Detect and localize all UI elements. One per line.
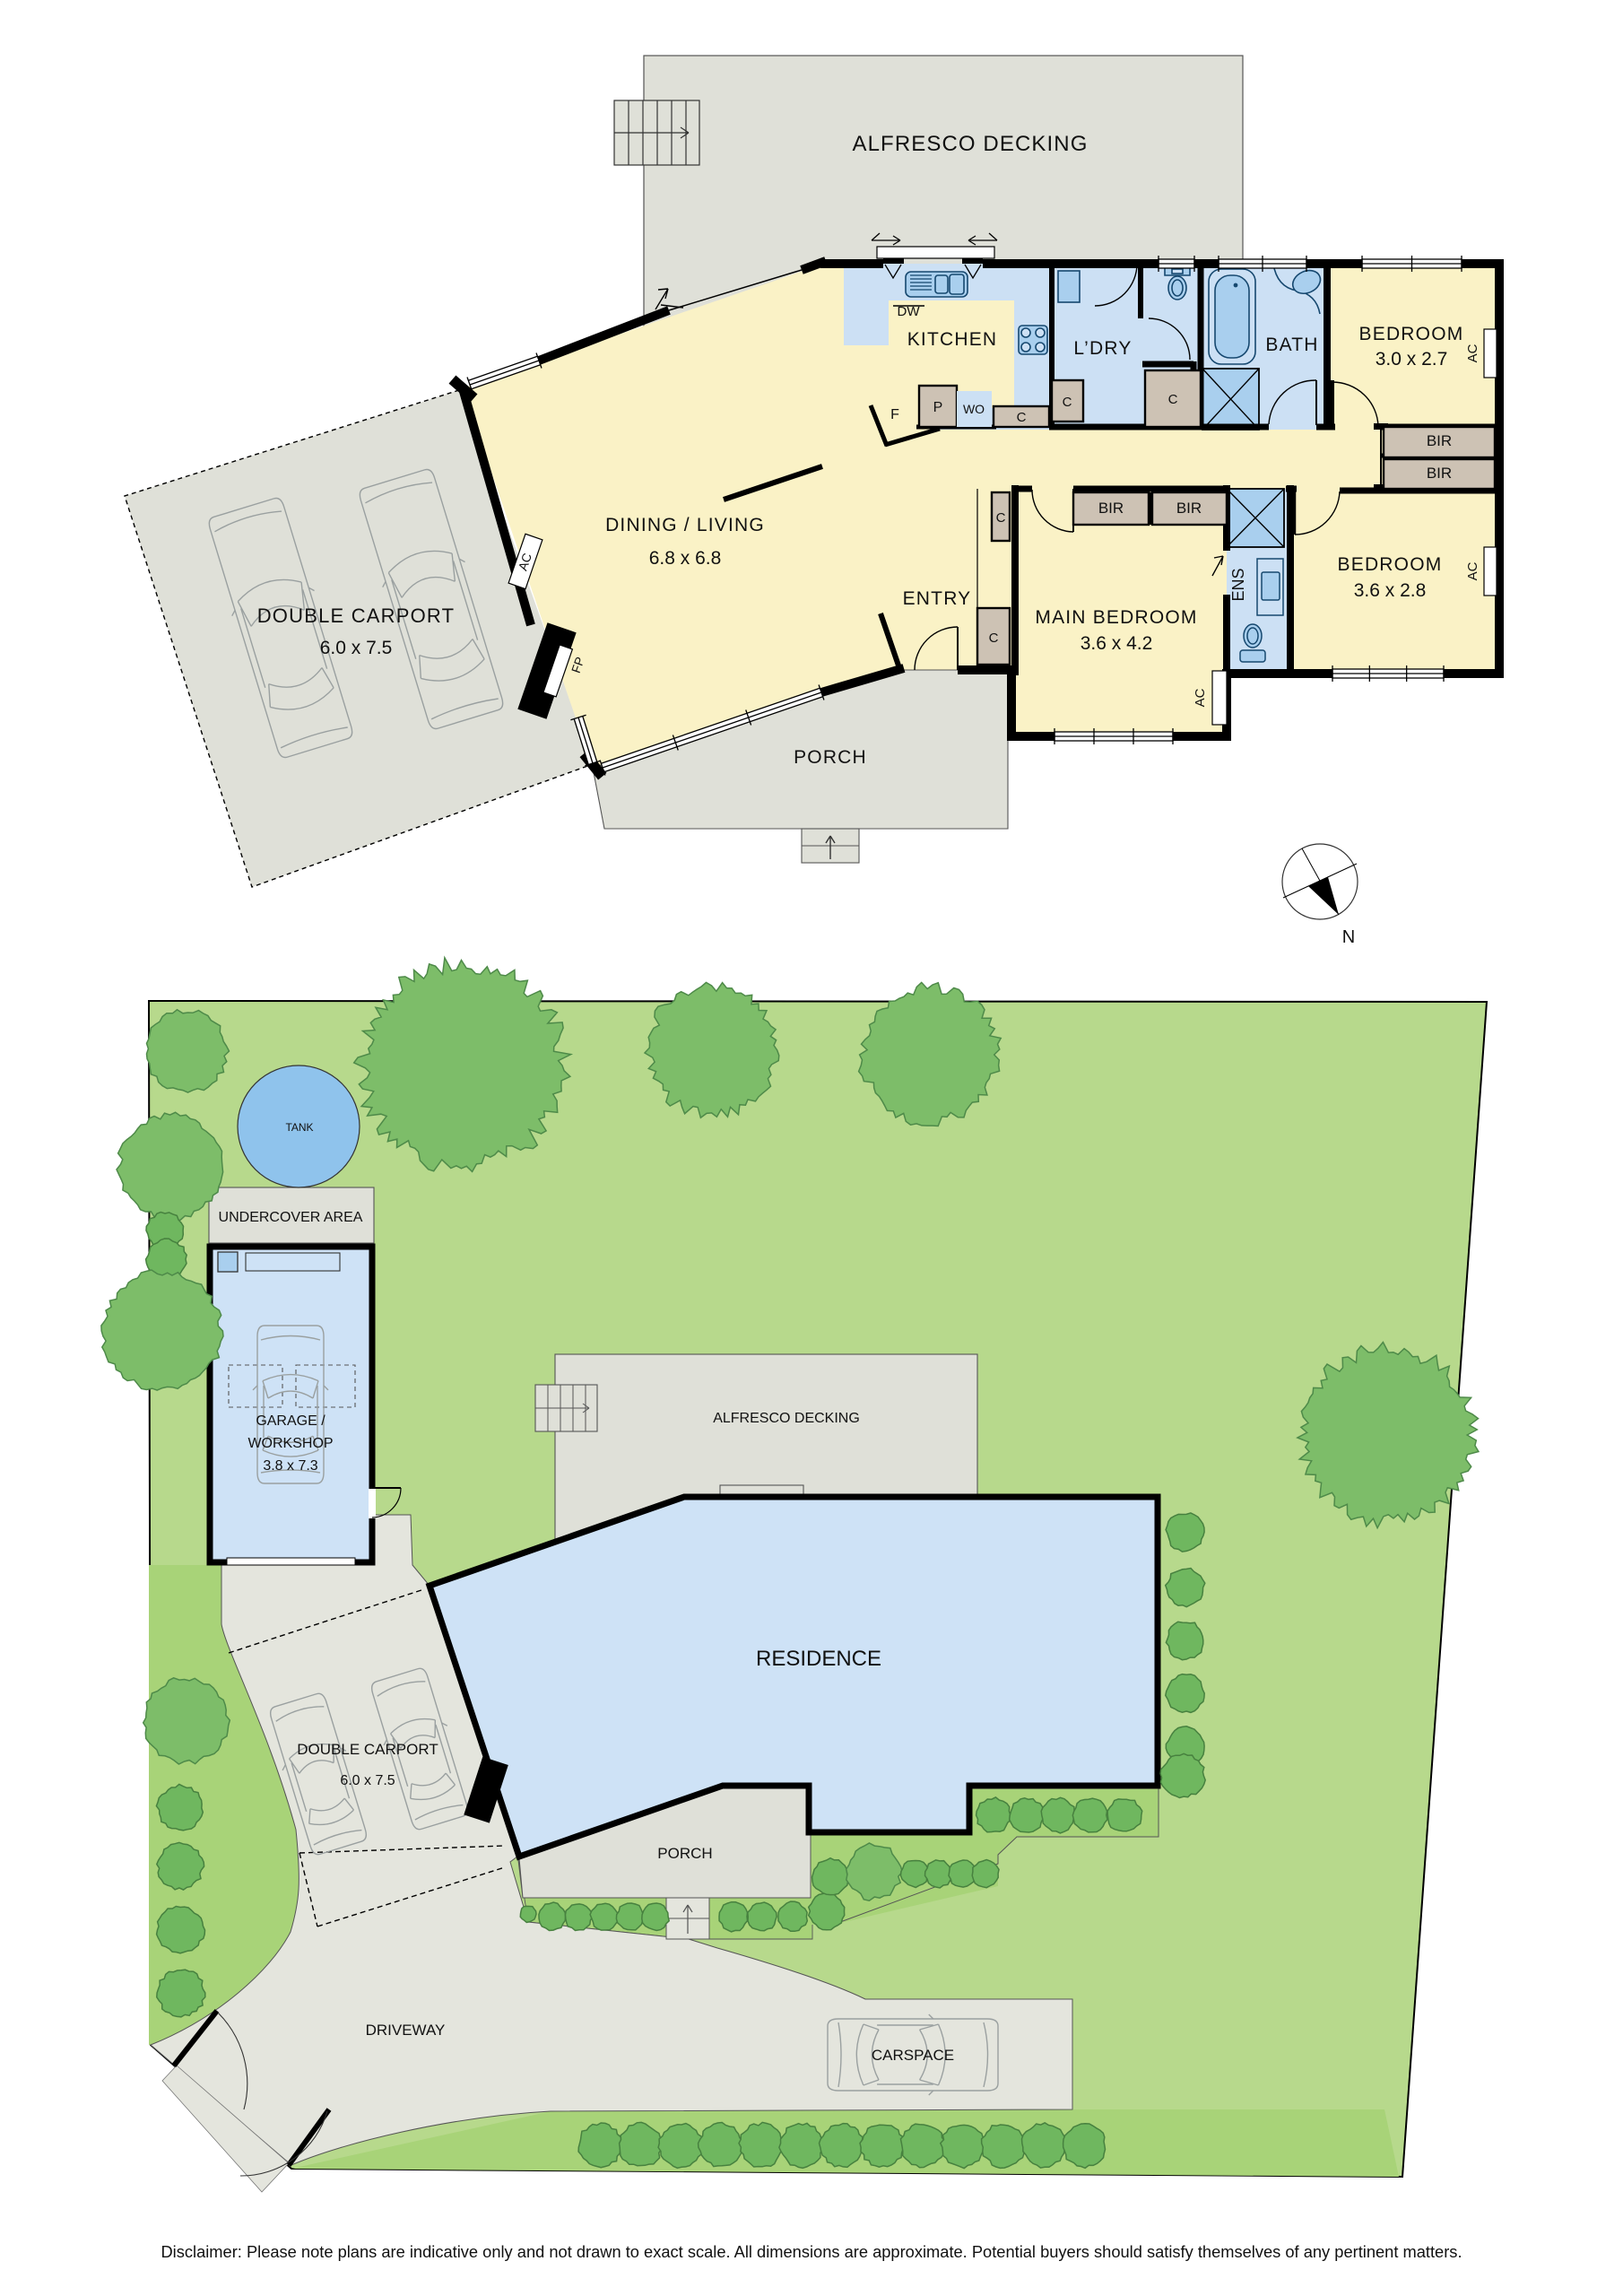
svg-text:6.0 x 7.5: 6.0 x 7.5 [320,638,393,658]
svg-text:ENTRY: ENTRY [903,588,972,609]
svg-text:KITCHEN: KITCHEN [907,329,998,350]
svg-text:3.6 x 2.8: 3.6 x 2.8 [1354,580,1427,601]
svg-text:6.0 x 7.5: 6.0 x 7.5 [340,1773,395,1788]
svg-text:DRIVEWAY: DRIVEWAY [366,2022,446,2039]
svg-text:3.0 x 2.7: 3.0 x 2.7 [1376,349,1448,370]
svg-text:DOUBLE CARPORT: DOUBLE CARPORT [257,604,456,627]
svg-text:WO: WO [963,402,985,416]
svg-text:Disclaimer: Please note plans: Disclaimer: Please note plans are indica… [161,2242,1462,2261]
svg-text:BEDROOM: BEDROOM [1338,554,1443,575]
svg-text:GARAGE /: GARAGE / [256,1413,325,1429]
svg-text:C: C [989,631,999,646]
svg-text:CARSPACE: CARSPACE [872,2047,954,2064]
svg-text:BIR: BIR [1427,465,1452,482]
svg-text:BEDROOM: BEDROOM [1359,324,1464,344]
svg-text:L’DRY: L’DRY [1073,338,1132,359]
svg-text:DOUBLE CARPORT: DOUBLE CARPORT [297,1741,438,1758]
svg-text:DINING / LIVING: DINING / LIVING [605,515,765,535]
svg-text:3.8 x 7.3: 3.8 x 7.3 [263,1458,317,1474]
svg-text:AC: AC [1465,561,1480,580]
svg-text:C: C [1063,395,1072,410]
svg-text:BATH: BATH [1265,335,1318,355]
svg-text:F: F [890,407,899,422]
svg-text:UNDERCOVER AREA: UNDERCOVER AREA [219,1210,363,1225]
svg-text:TANK: TANK [285,1121,313,1134]
svg-text:ALFRESCO DECKING: ALFRESCO DECKING [713,1411,860,1426]
svg-text:C: C [1017,410,1027,425]
svg-text:RESIDENCE: RESIDENCE [756,1647,881,1671]
svg-text:C: C [996,510,1006,526]
svg-text:AC: AC [1193,688,1208,707]
svg-text:BIR: BIR [1427,432,1452,449]
svg-text:ENS: ENS [1229,568,1247,601]
svg-text:6.8 x 6.8: 6.8 x 6.8 [649,548,722,569]
svg-text:BIR: BIR [1176,500,1202,517]
svg-text:3.6 x 4.2: 3.6 x 4.2 [1081,633,1153,654]
svg-text:PORCH: PORCH [657,1845,712,1862]
svg-text:PORCH: PORCH [794,747,867,768]
svg-text:ALFRESCO DECKING: ALFRESCO DECKING [853,132,1089,156]
svg-text:MAIN BEDROOM: MAIN BEDROOM [1035,607,1197,628]
svg-text:AC: AC [1465,344,1480,362]
svg-text:C: C [1168,392,1178,407]
svg-text:P: P [933,400,943,415]
svg-text:WORKSHOP: WORKSHOP [247,1436,333,1451]
svg-text:BIR: BIR [1098,500,1124,517]
svg-text:N: N [1342,927,1355,947]
